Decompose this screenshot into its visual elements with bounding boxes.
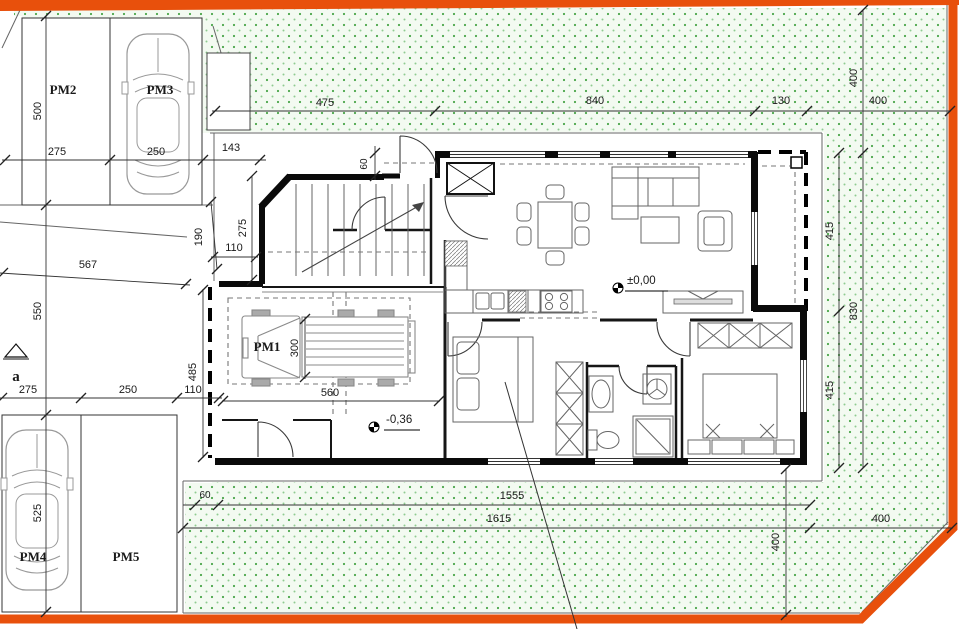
- parking-label-pm5: PM5: [113, 549, 140, 564]
- site-plan-drawing: PM2 PM3 PM4 PM5: [0, 0, 959, 629]
- tv-icon: [674, 299, 732, 304]
- dim-bottom-1555: 1555: [500, 490, 524, 502]
- dim-hl-275: 275: [237, 219, 249, 237]
- parking-label-pm4: PM4: [20, 549, 47, 564]
- dim-top-840: 840: [586, 95, 604, 107]
- level-garage-text: -0,36: [386, 414, 412, 426]
- dim-left-500: 500: [32, 102, 44, 120]
- carport-pm1: PM1: [242, 310, 415, 386]
- corner-column: [791, 157, 802, 168]
- dim-hl-110: 110: [225, 242, 243, 254]
- dim-top-475: 475: [316, 97, 334, 109]
- dim-left-525: 525: [32, 504, 44, 522]
- dim-garage-300: 300: [289, 339, 301, 357]
- dim-right-415b: 415: [824, 381, 836, 399]
- dim-entry-60: 60: [359, 158, 370, 170]
- level-ground-text: ±0,00: [627, 275, 656, 287]
- dim-right-830: 830: [848, 302, 860, 320]
- dim-right-415a: 415: [824, 222, 836, 240]
- dim-pktop-143: 143: [222, 142, 240, 154]
- dim-garage-560: 560: [321, 387, 339, 399]
- installation-shaft: [447, 163, 494, 194]
- car-pm3: [122, 34, 194, 194]
- dim-pktop-250: 250: [147, 146, 165, 158]
- parking-area-bottom: PM4 PM5: [1, 415, 177, 612]
- dim-pkbot-275: 275: [19, 384, 37, 396]
- dim-pkbot-250: 250: [119, 384, 137, 396]
- parking-label-pm2: PM2: [50, 82, 77, 97]
- dim-bottom-1615: 1615: [487, 513, 511, 525]
- floor-plan-canvas: PM2 PM3 PM4 PM5: [0, 0, 959, 629]
- dim-bottom-60: 60: [199, 490, 211, 501]
- dim-left-550: 550: [32, 302, 44, 320]
- section-marker-label: a: [12, 369, 20, 385]
- dim-right-400top: 400: [848, 69, 860, 87]
- dim-hl-485: 485: [187, 363, 199, 381]
- parking-label-pm3: PM3: [147, 82, 174, 97]
- dim-hl-190: 190: [193, 228, 205, 246]
- dim-bottom-400: 400: [872, 513, 890, 525]
- utility-pad: [207, 53, 250, 130]
- dim-hl-567: 567: [79, 259, 97, 271]
- dim-pktop-275: 275: [48, 146, 66, 158]
- dim-top-130: 130: [772, 95, 790, 107]
- dim-top-400: 400: [869, 95, 887, 107]
- dim-right-400bottom: 400: [770, 533, 782, 551]
- dim-pkbot-110: 110: [184, 384, 202, 396]
- parking-label-pm1: PM1: [254, 339, 281, 354]
